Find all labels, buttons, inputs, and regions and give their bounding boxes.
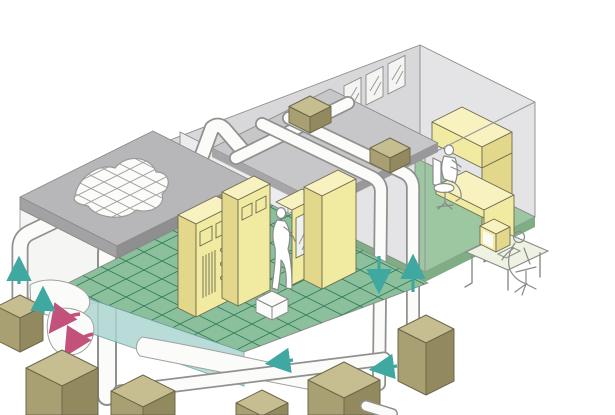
person-head [276,208,285,219]
large-cabinet [304,170,356,289]
tall-cabinet [222,176,270,306]
person-torso [442,156,458,183]
air-handling-unit [398,315,454,395]
chair-seat [434,184,454,193]
diagram-canvas [0,0,615,415]
ground-unit [236,390,288,415]
isometric-cleanroom-illustration [0,0,615,415]
ground-unit [26,350,98,415]
ground-unit [0,295,43,352]
left-arrow [271,360,293,363]
